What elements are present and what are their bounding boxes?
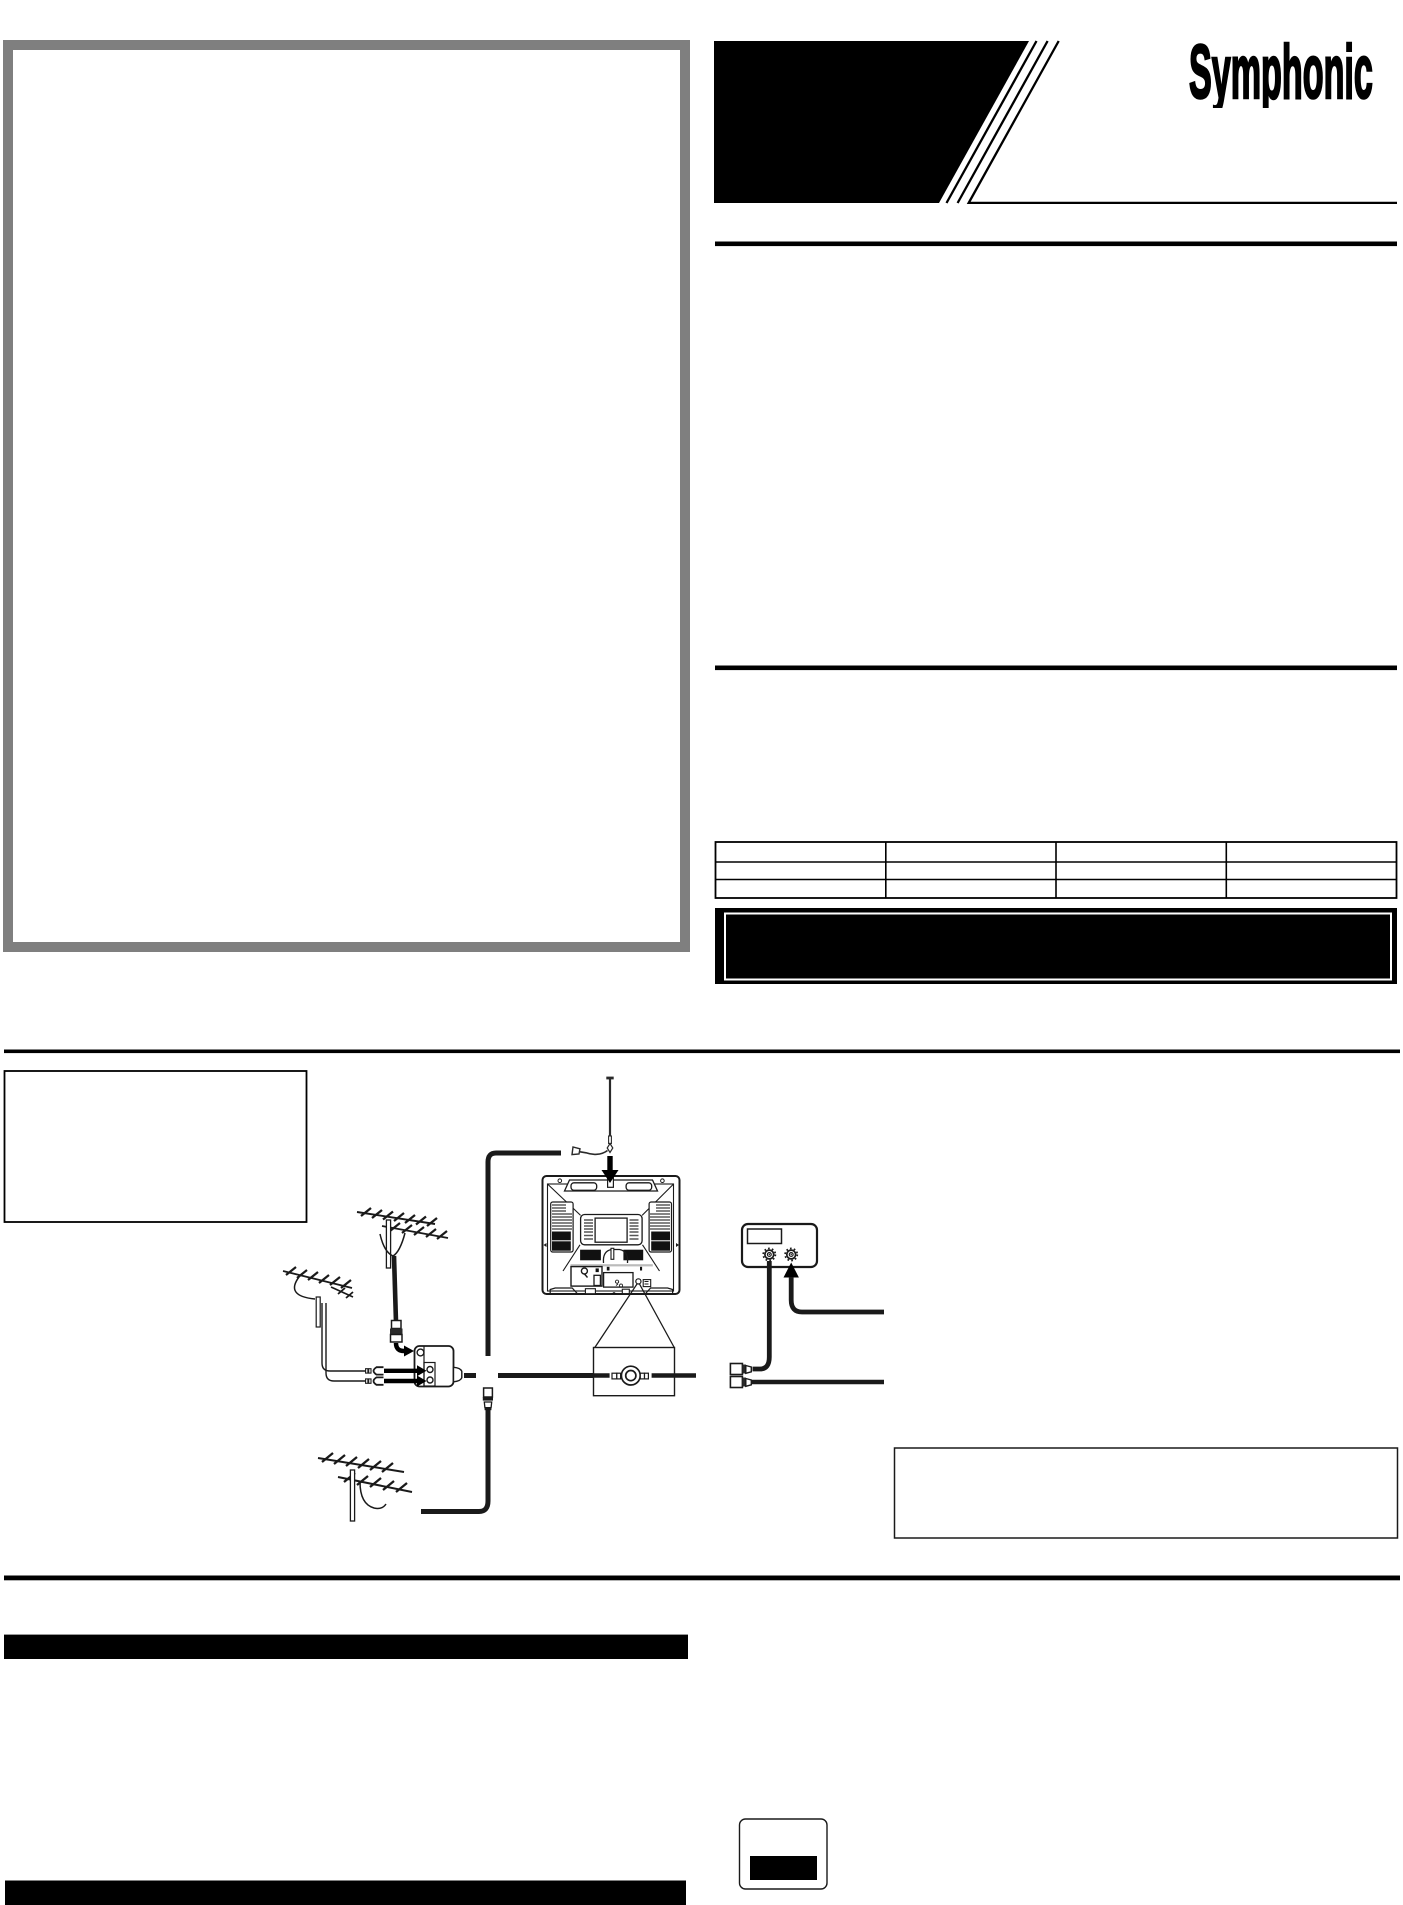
svg-text:Symphonic: Symphonic bbox=[1189, 31, 1373, 115]
